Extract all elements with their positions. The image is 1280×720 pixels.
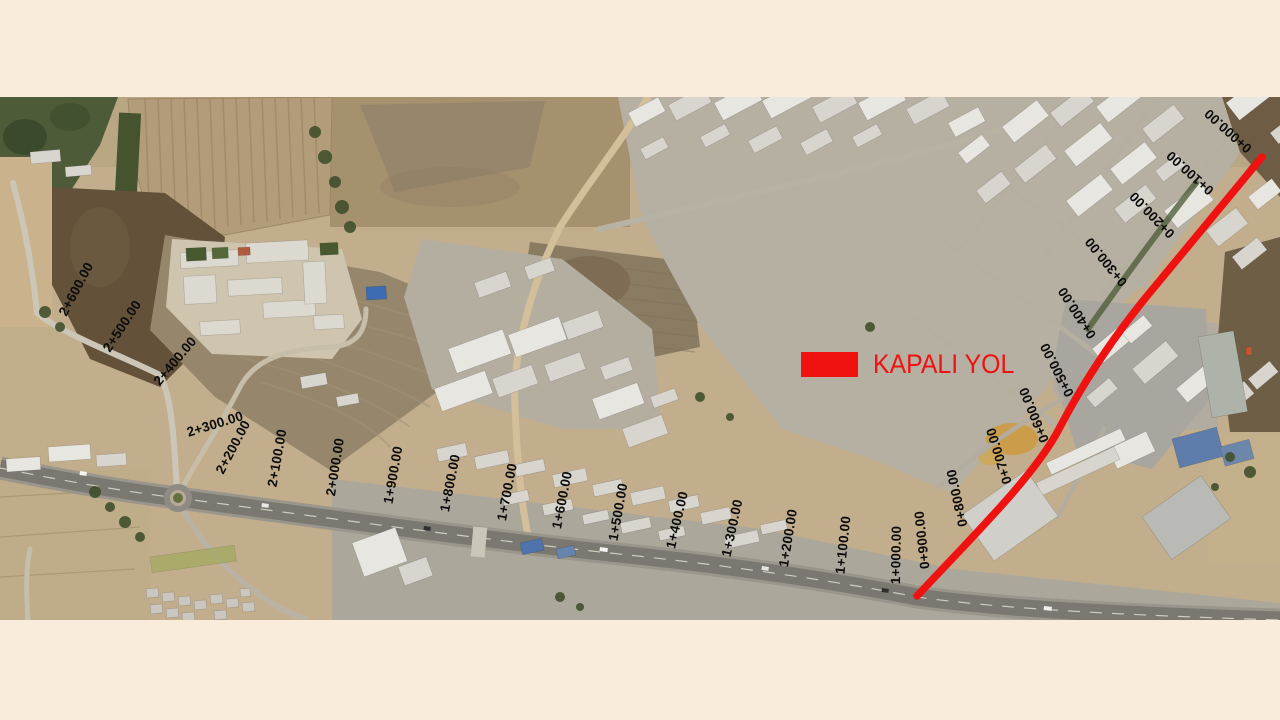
satellite-imagery	[0, 97, 1280, 620]
pool	[366, 286, 387, 300]
screenshot-stage: 0+000.000+100.000+200.000+300.000+400.00…	[0, 0, 1280, 720]
closed-road-label: KAPALI YOL	[873, 351, 1014, 378]
satellite-map: 0+000.000+100.000+200.000+300.000+400.00…	[0, 97, 1280, 620]
closed-road-swatch	[801, 352, 858, 377]
closed-road-legend: KAPALI YOL	[801, 351, 1027, 378]
